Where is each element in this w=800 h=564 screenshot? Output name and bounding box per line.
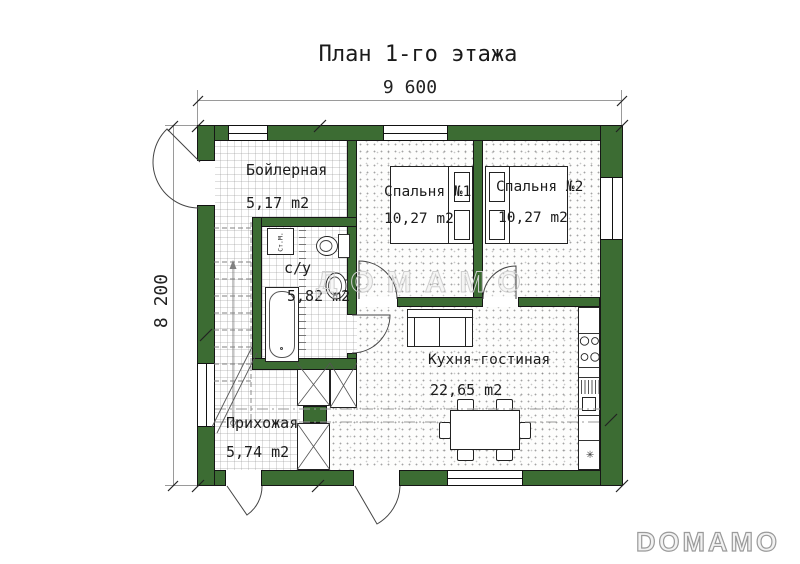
wall-bedroom1-bottom <box>397 297 483 307</box>
wall-partition-bedrooms <box>473 140 483 307</box>
sofa <box>407 309 473 347</box>
extension-line-top-left <box>197 90 198 127</box>
room-area-bathroom: 5,82 m2 <box>287 289 350 304</box>
door-arc-entry <box>227 486 262 515</box>
window-frame-line <box>206 364 207 426</box>
bed-1-pillow <box>454 210 470 240</box>
fridge-symbol: ✳ <box>582 447 598 462</box>
window-frame-line <box>612 178 613 239</box>
wall-bathroom-top <box>252 217 357 227</box>
dining-table <box>450 410 520 450</box>
window-frame-line <box>384 133 447 134</box>
room-label-bedroom2: Спальня №2 <box>496 180 583 195</box>
sofa-back-line <box>408 317 472 318</box>
bathtub-drain <box>280 347 283 350</box>
counter-section-line <box>579 367 599 368</box>
window-frame-line <box>229 133 267 134</box>
dimension-height-label: 8 200 <box>151 269 169 333</box>
room-area-bedroom2: 10,27 m2 <box>498 211 568 226</box>
chair <box>496 399 513 411</box>
dimension-width-label: 9 600 <box>330 77 490 98</box>
sofa-cushion-divider <box>439 318 440 346</box>
brand-logo: DOMAMO <box>636 527 780 558</box>
window-kitchen <box>447 470 523 486</box>
room-label-kitchen: Кухня-гостиная <box>428 353 550 368</box>
room-area-bedroom1: 10,27 m2 <box>384 212 454 227</box>
room-label-hallway: Прихожая <box>226 416 298 431</box>
window-bedroom1 <box>383 125 448 141</box>
wall-bedroom2-bottom <box>518 297 600 307</box>
floor-plan-canvas: План 1-го этажа 9 600 8 200 <box>0 0 800 564</box>
wall-bathroom-left <box>252 217 262 370</box>
room-label-boiler: Бойлерная <box>246 163 327 178</box>
counter-section-line <box>579 415 599 416</box>
room-area-boiler: 5,17 m2 <box>246 196 309 211</box>
sofa-armrest-right <box>465 318 466 346</box>
bed-1-headboard-line <box>448 167 449 243</box>
sofa-armrest-left <box>414 318 415 346</box>
extension-line-left-bottom <box>165 485 199 486</box>
chair <box>457 449 474 461</box>
chair <box>457 399 474 411</box>
dimension-line-left <box>173 126 174 486</box>
extension-line-left-top <box>165 125 199 126</box>
window-boiler <box>228 125 268 141</box>
window-frame-line <box>448 478 522 479</box>
column <box>303 406 327 423</box>
chair <box>519 422 531 439</box>
window-stair <box>197 363 215 427</box>
braced-panel-3 <box>297 423 330 470</box>
window-bedroom2 <box>600 177 623 240</box>
washing-machine: Ст.М. <box>267 228 294 255</box>
room-area-hallway: 5,74 m2 <box>226 445 289 460</box>
page-title: План 1-го этажа <box>258 42 578 67</box>
sink-cabinet <box>582 397 596 411</box>
room-label-bedroom1: Спальня №1 <box>384 185 471 200</box>
sink-drainer <box>581 380 599 394</box>
washing-machine-label: Ст.М. <box>277 230 285 255</box>
door-arc-terrace <box>355 486 400 524</box>
door-opening-boiler <box>197 160 215 206</box>
counter-section-line <box>579 333 599 334</box>
chair <box>439 422 451 439</box>
extension-line-top-right <box>621 90 622 127</box>
dimension-line-top <box>198 100 622 101</box>
room-area-kitchen: 22,65 m2 <box>430 383 502 398</box>
door-opening-entry <box>225 470 262 486</box>
door-opening-terrace <box>353 470 400 486</box>
door-arc-boiler <box>153 129 200 208</box>
chair <box>496 449 513 461</box>
counter-section-line <box>579 377 599 378</box>
room-label-bathroom: с/у <box>284 261 311 276</box>
counter-section-line <box>579 440 599 441</box>
